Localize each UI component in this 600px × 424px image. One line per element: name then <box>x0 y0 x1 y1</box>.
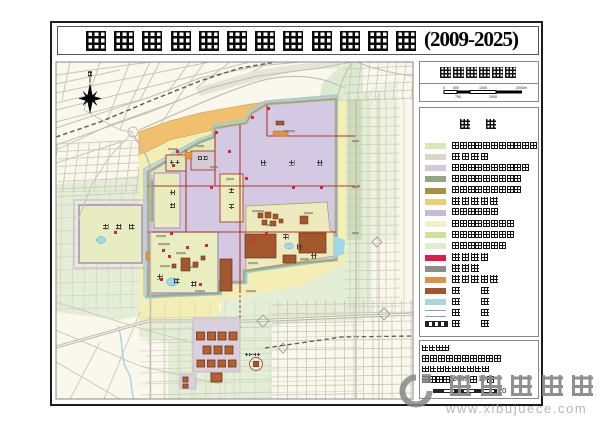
svg-text:1000: 1000 <box>479 86 487 90</box>
svg-text:1500: 1500 <box>489 95 497 99</box>
svg-text:2000m: 2000m <box>516 86 527 90</box>
svg-text:500: 500 <box>453 86 459 90</box>
svg-text:750: 750 <box>455 95 461 99</box>
svg-text:0: 0 <box>443 86 445 90</box>
